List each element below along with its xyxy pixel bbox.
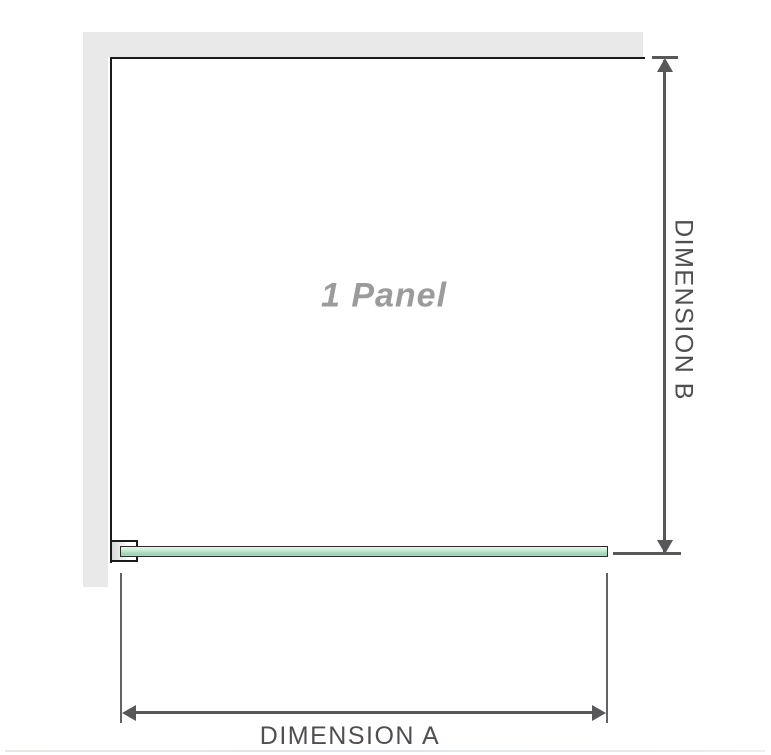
bottom-divider bbox=[5, 750, 765, 752]
extension-line-right bbox=[606, 573, 608, 723]
dimension-b-line bbox=[663, 60, 666, 553]
glass-panel-bar bbox=[120, 546, 608, 557]
arrow-right-icon bbox=[592, 705, 606, 721]
dimension-b-label: DIMENSION B bbox=[669, 219, 698, 401]
dimension-a-label: DIMENSION A bbox=[260, 722, 440, 751]
dimension-diagram: 1 Panel DIMENSION B DIMENSION A bbox=[0, 0, 771, 755]
arrow-up-icon bbox=[657, 58, 673, 72]
extension-line-left bbox=[120, 573, 122, 723]
dimension-a-line bbox=[132, 711, 596, 714]
panel-label: 1 Panel bbox=[321, 277, 447, 316]
wall-band-left bbox=[83, 32, 108, 587]
wall-band-top bbox=[83, 32, 643, 57]
arrow-left-icon bbox=[122, 705, 136, 721]
arrow-down-icon bbox=[657, 540, 673, 554]
